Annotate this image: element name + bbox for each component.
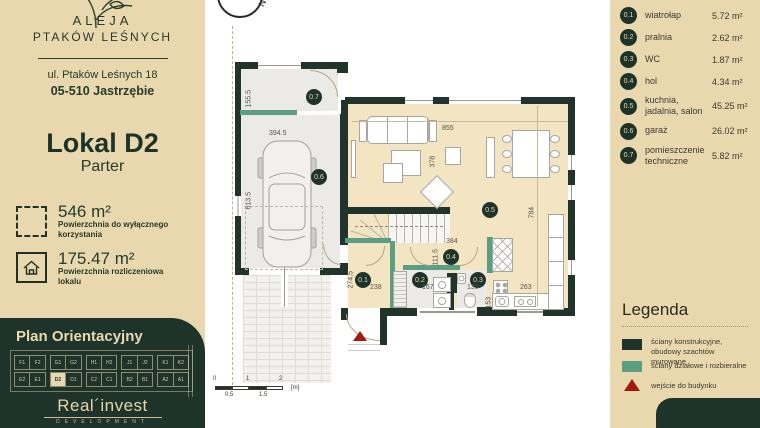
scale-segment (249, 386, 266, 390)
dim-line (537, 106, 538, 306)
unit-label: G2 (65, 356, 80, 369)
scale-0: 0 (213, 376, 216, 382)
room-area: 4.34 m² (712, 77, 756, 87)
partition-wall (390, 241, 395, 270)
stove (514, 296, 536, 307)
dashed-area-icon (16, 206, 47, 237)
dim-130: 130 (467, 284, 479, 291)
wall-segment (568, 170, 575, 185)
room-area: 26.02 m² (712, 126, 756, 136)
scale-segment (266, 386, 283, 390)
window (258, 62, 301, 69)
room-list-item: 0.5 kuchnia, jadalnia, salon 45.25 m² (620, 95, 756, 118)
dim-155-5: 155.5 (246, 90, 253, 108)
scale-unit: [m] (291, 385, 299, 391)
room-badge-0-4: 0.4 (443, 249, 459, 265)
developer-name2: invest (100, 396, 147, 415)
site-plan-unit: E2 E1 (14, 372, 46, 387)
room-badge-0-6: 0.6 (311, 169, 327, 185)
brand-line2: PTAKÓW LEŚNYCH (0, 30, 205, 44)
scale-1: 1 (246, 376, 249, 382)
wall-segment (521, 97, 575, 104)
orientation-panel: Plan Orientacyjny F1 F2 G1 G2 H1 H2 J1 (0, 318, 205, 428)
unit-label: G1 (51, 356, 65, 369)
legend-divider (622, 326, 748, 327)
unit-label: C1 (101, 373, 116, 386)
wall-segment (340, 114, 348, 245)
room-number-badge: 0.6 (620, 123, 637, 140)
stairs (388, 214, 450, 243)
address-street: ul. Ptaków Leśnych 18 (0, 69, 205, 81)
site-plan-unit: K1 K2 (157, 355, 189, 370)
dim-378: 378 (430, 155, 437, 169)
unit-label: H1 (87, 356, 101, 369)
room-area: 45.25 m² (712, 101, 756, 111)
room-area: 1.87 m² (712, 55, 756, 65)
room-number-badge: 0.3 (620, 51, 637, 68)
entry-step (348, 344, 380, 345)
chair (550, 150, 560, 158)
site-plan: F1 F2 G1 G2 H1 H2 J1 J2 K1 K2 (10, 350, 193, 392)
wall-segment (235, 62, 241, 275)
developer-divider (44, 417, 162, 418)
room-list-item: 0.6 garaż 26.02 m² (620, 123, 756, 140)
wardrobe (393, 271, 407, 308)
site-plan-unit: F1 F2 (14, 355, 46, 370)
scale-segment (232, 386, 249, 390)
structural-wall-swatch (622, 339, 642, 350)
partition-wall (345, 238, 391, 243)
toilet (464, 293, 476, 308)
dim-613-5: 613.5 (246, 192, 253, 210)
dim-384: 384 (446, 238, 458, 245)
scale-2: 2 (279, 376, 282, 382)
site-road (188, 345, 193, 397)
partition-wall (403, 265, 460, 270)
scale-0-5: 0.5 (225, 392, 233, 398)
dryer (433, 293, 451, 308)
sideboard (486, 137, 495, 178)
window (235, 196, 241, 216)
dim-784: 784 (529, 206, 536, 220)
room-list-item: 0.7 pomieszczenie techniczne 5.82 m² (620, 145, 756, 168)
brand-divider (38, 58, 168, 59)
partition-wall (240, 110, 297, 115)
side-table (359, 120, 367, 142)
unit-label: A2 (158, 373, 172, 386)
chair (502, 135, 512, 143)
site-plan-unit: A2 A1 (157, 372, 189, 387)
scale-segment (215, 386, 232, 390)
site-row-bottom: E2 E1 D2 D1 C2 C1 B2 B1 A2 A1 (14, 372, 189, 387)
coffee-table (383, 163, 403, 183)
unit-label: D2 (51, 373, 65, 386)
side-table (429, 120, 437, 142)
room-name: WC (645, 54, 708, 65)
site-plan-unit: G1 G2 (50, 355, 82, 370)
dim-855: 855 (441, 125, 455, 132)
room-name: hol (645, 76, 708, 87)
porch-wall (380, 316, 387, 345)
wall-segment (345, 97, 405, 104)
room-name: pomieszczenie techniczne (645, 145, 708, 168)
dim-394-5: 394.5 (269, 130, 287, 137)
entrance-marker (353, 331, 367, 341)
developer-subtitle: DEVELOPMENT (0, 419, 205, 425)
wall-segment (433, 97, 449, 104)
unit-label: D1 (65, 373, 80, 386)
stairs-walkline (355, 226, 443, 227)
chair (502, 165, 512, 173)
legend-title: Legenda (622, 300, 688, 320)
wc-sink (457, 273, 466, 284)
room-number-badge: 0.4 (620, 73, 637, 90)
orientation-title: Plan Orientacyjny (16, 328, 143, 345)
unit-label: E1 (29, 373, 44, 386)
unit-label: F2 (29, 356, 44, 369)
brand-line1: ALEJA (0, 13, 205, 28)
site-plan-unit: D2 D1 (50, 372, 82, 387)
tv-cabinet (351, 140, 356, 178)
wall-segment (380, 308, 417, 316)
legend-label: wejście do budynku (651, 381, 716, 391)
window (568, 155, 575, 170)
room-name: garaż (645, 125, 708, 136)
dim-274-5: 274.5 (348, 271, 355, 289)
developer-name: Real (57, 396, 94, 415)
table (445, 147, 461, 165)
kitchen-sink (495, 296, 509, 307)
site-plan-unit: B2 B1 (121, 372, 153, 387)
wall-segment (345, 207, 450, 214)
developer-logo: Real´invest DEVELOPMENT (0, 396, 205, 425)
legend-item-entrance: wejście do budynku (622, 379, 716, 391)
floor-plan: N (205, 0, 610, 428)
unit-label: B2 (122, 373, 136, 386)
contact-button[interactable] (656, 398, 760, 428)
room-number-badge: 0.1 (620, 7, 637, 24)
site-row-top: F1 F2 G1 G2 H1 H2 J1 J2 K1 K2 (14, 355, 189, 370)
room-name: pralnia (645, 32, 708, 43)
unit-label: K1 (158, 356, 172, 369)
room-badge-0-1: 0.1 (355, 272, 371, 288)
dim-111-5: 111.5 (433, 249, 440, 265)
scale-1-5: 1.5 (259, 392, 267, 398)
house-icon (16, 252, 47, 283)
unit-floor: Parter (0, 158, 205, 176)
unit-label: J2 (137, 356, 152, 369)
room-number-badge: 0.2 (620, 29, 637, 46)
unit-label: K2 (173, 356, 188, 369)
window (420, 308, 475, 316)
washing-machine (433, 277, 451, 292)
room-list-item: 0.4 hol 4.34 m² (620, 73, 756, 90)
plot-boundary-line (232, 26, 233, 390)
window (405, 97, 433, 104)
unit-label: E2 (15, 373, 29, 386)
room-list-item: 0.2 pralnia 2.62 m² (620, 29, 756, 46)
site-plan-unit: H1 H2 (86, 355, 118, 370)
unit-label: H2 (101, 356, 116, 369)
exclusive-area-label: Powierzchnia do wyłącznego korzystania (58, 220, 178, 239)
room-area: 2.62 m² (712, 33, 756, 43)
room-badge-0-7: 0.7 (306, 89, 322, 105)
room-name: kuchnia, jadalnia, salon (645, 95, 708, 118)
entry-step (348, 350, 380, 351)
chair (550, 135, 560, 143)
window (568, 185, 575, 200)
parking-outline (245, 206, 323, 270)
room-number-badge: 0.5 (620, 98, 637, 115)
dining-table (512, 130, 550, 178)
room-area: 5.72 m² (712, 11, 756, 21)
room-list-item: 0.1 wiatrołap 5.72 m² (620, 7, 756, 24)
dim-167: 167 (422, 284, 434, 291)
exclusive-area-value: 546 m² (58, 202, 111, 222)
window (568, 260, 575, 275)
dim-153: 153 (486, 297, 493, 309)
wall-segment (337, 62, 348, 73)
entrance-swatch (624, 379, 640, 391)
room-list: 0.1 wiatrołap 5.72 m² 0.2 pralnia 2.62 m… (620, 7, 756, 172)
unit-title: Lokal D2 (0, 128, 205, 159)
unit-label: J1 (122, 356, 136, 369)
room-number-badge: 0.7 (620, 147, 637, 164)
room-area: 5.82 m² (712, 151, 756, 161)
dim-263: 263 (520, 284, 532, 291)
dim-line (352, 121, 568, 122)
billing-area-label: Powierzchnia rozliczeniowa lokalu (58, 267, 178, 286)
chair (550, 165, 560, 173)
left-sidebar: ALEJA PTAKÓW LEŚNYCH ul. Ptaków Leśnych … (0, 0, 205, 428)
unit-label: C2 (87, 373, 101, 386)
billing-area-value: 175.47 m² (58, 249, 135, 269)
kitchen-counter-right (548, 214, 564, 310)
legend-label: ściany działowe i rozbieralne (651, 361, 746, 372)
site-plan-unit: C2 C1 (86, 372, 118, 387)
site-plan-unit: J1 J2 (121, 355, 153, 370)
hob (493, 280, 508, 294)
partition-wall-swatch (622, 361, 642, 372)
dim-238: 238 (370, 284, 382, 291)
kitchen-tall-unit (492, 238, 513, 272)
floorplan-card: ALEJA PTAKÓW LEŚNYCH ul. Ptaków Leśnych … (0, 0, 760, 428)
address-city: 05-510 Jastrzębie (0, 84, 205, 98)
unit-label: F1 (15, 356, 29, 369)
wall-segment (320, 268, 348, 275)
room-name: wiatrołap (645, 10, 708, 21)
unit-label: A1 (173, 373, 188, 386)
chair (502, 150, 512, 158)
legend-item-partition: ściany działowe i rozbieralne (622, 361, 746, 372)
wall-segment (568, 102, 575, 155)
unit-label: B1 (137, 373, 152, 386)
room-list-item: 0.3 WC 1.87 m² (620, 51, 756, 68)
right-panel: 0.1 wiatrołap 5.72 m² 0.2 pralnia 2.62 m… (610, 0, 760, 428)
window (449, 97, 521, 104)
wall-segment (568, 200, 575, 260)
room-badge-0-5: 0.5 (482, 202, 498, 218)
